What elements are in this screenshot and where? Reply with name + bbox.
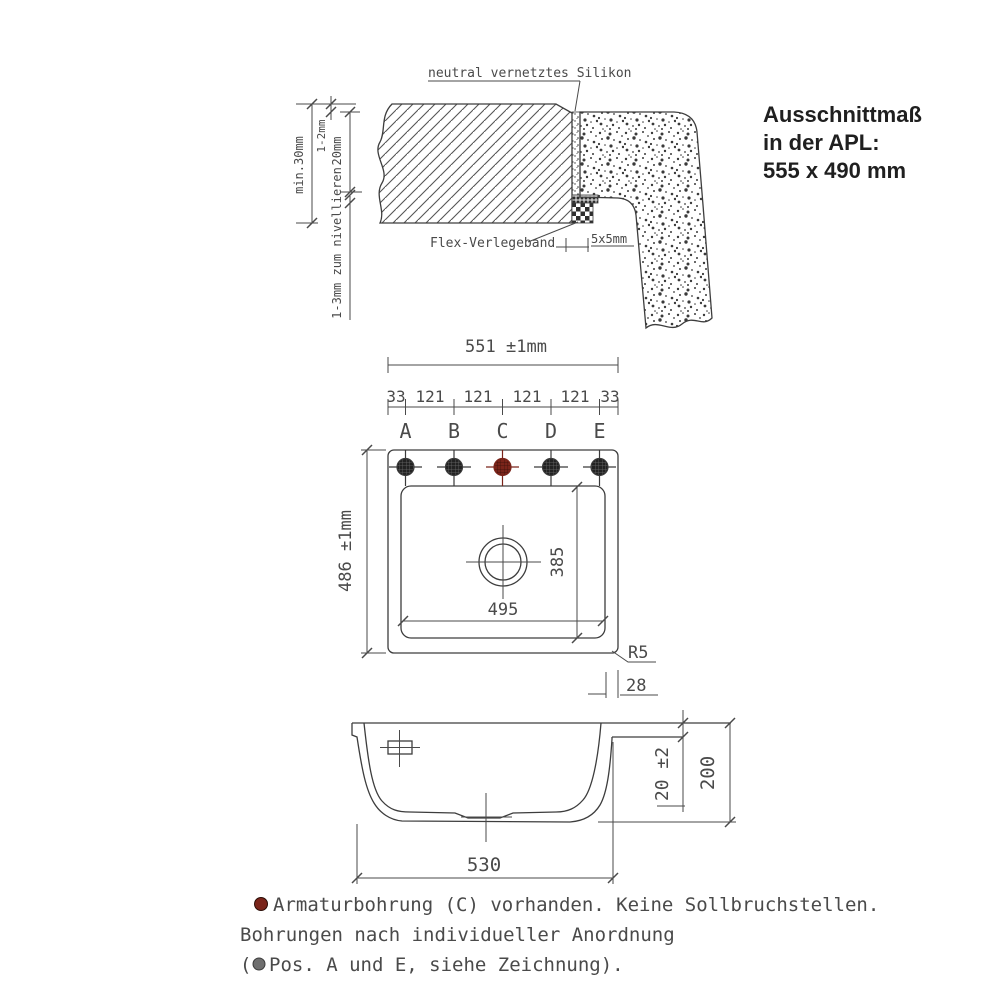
flex-tape-square (572, 203, 593, 223)
hole-label-a: A (399, 419, 411, 443)
dim-overall-depth: 486 ±1mm (336, 510, 356, 592)
drain (466, 525, 541, 599)
dim-basin-width: 495 (488, 600, 519, 620)
segment-121-4: 121 (561, 387, 590, 406)
hole-spacing-dimensions: 33 121 121 121 121 33 (386, 387, 619, 415)
dim-rim-offset-group: 28 (588, 670, 658, 698)
dim-5x5-group: 5x5mm (556, 232, 634, 252)
drawing-svg: min.30mm 1-2mm 20mm 1-3mm zum nivelliere… (0, 0, 1000, 1000)
dim-bottom-width: 530 (467, 854, 501, 876)
drain-centerline (461, 793, 512, 842)
segment-33-right: 33 (600, 387, 619, 406)
hole-d (543, 459, 560, 476)
granite-sink-body (580, 112, 712, 328)
hole-label-e: E (593, 419, 605, 443)
dim-rim-thickness: 20 ±2 (652, 747, 673, 801)
footnote-line3-paren: ( (240, 954, 251, 976)
section-detail-view: min.30mm 1-2mm 20mm 1-3mm zum nivelliere… (292, 66, 712, 328)
side-view: 530 20 ±2 200 (352, 710, 736, 884)
dim-basin-depth: 385 (548, 547, 568, 578)
cutout-note: Ausschnittmaß in der APL: 555 x 490 mm (763, 102, 922, 183)
dim-levelling: 1-3mm zum nivellieren (330, 167, 344, 319)
footnote-line3: Pos. A und E, siehe Zeichnung). (269, 954, 624, 976)
hole-a (397, 459, 414, 476)
hole-labels: A B C D E (399, 419, 605, 443)
segment-33-left: 33 (386, 387, 405, 406)
corner-radius: R5 (628, 643, 648, 663)
footnote-line1: Armaturbohrung (C) vorhanden. Keine Soll… (273, 894, 879, 916)
sink-technical-drawing: min.30mm 1-2mm 20mm 1-3mm zum nivelliere… (0, 0, 1000, 1000)
dim-depth-group: 486 ±1mm (336, 445, 386, 658)
cutout-note-line3: 555 x 490 mm (763, 158, 906, 183)
hole-label-c: C (496, 419, 508, 443)
segment-121-1: 121 (416, 387, 445, 406)
hole-c (494, 459, 511, 476)
footnote-line2: Bohrungen nach individueller Anordnung (240, 924, 675, 946)
worktop-hatched-body (378, 104, 572, 223)
dim-rim-thickness-group: 20 ±2 (652, 710, 688, 812)
silicone-joint (572, 112, 580, 195)
hole-e (591, 459, 608, 476)
pos-hole-bullet (253, 958, 265, 970)
dim-basin-depth-group: 385 (548, 482, 582, 643)
segment-121-3: 121 (513, 387, 542, 406)
dim-overall-width: 551 ±1mm (465, 337, 547, 357)
hole-section-marker (380, 730, 420, 767)
segment-121-2: 121 (464, 387, 493, 406)
dim-min-thickness: min.30mm (292, 136, 306, 194)
hole-label-b: B (448, 419, 460, 443)
silicone-label: neutral vernetztes Silikon (428, 66, 632, 81)
dim-5x5: 5x5mm (591, 232, 627, 246)
hole-label-d: D (545, 419, 557, 443)
dim-joint: 1-2mm (315, 119, 328, 152)
flex-tape-callout: Flex-Verlegeband (430, 222, 578, 251)
dim-bottom-width-group: 530 (352, 742, 618, 884)
fitting-hole-c (486, 450, 519, 486)
fitting-hole-bullet (255, 898, 268, 911)
top-view: 551 ±1mm 33 121 121 121 121 33 A B C D (336, 337, 658, 698)
footnote: Armaturbohrung (C) vorhanden. Keine Soll… (240, 894, 879, 976)
hole-b (446, 459, 463, 476)
dim-total-depth: 200 (697, 756, 719, 790)
dim-rim-height: 20mm (330, 137, 344, 166)
section-dimensions: min.30mm 1-2mm 20mm 1-3mm zum nivelliere… (292, 96, 362, 320)
dim-rim-offset: 28 (626, 676, 646, 696)
cutout-note-line2: in der APL: (763, 130, 880, 155)
cutout-note-line1: Ausschnittmaß (763, 102, 922, 127)
basin-outer-wall (352, 723, 612, 822)
